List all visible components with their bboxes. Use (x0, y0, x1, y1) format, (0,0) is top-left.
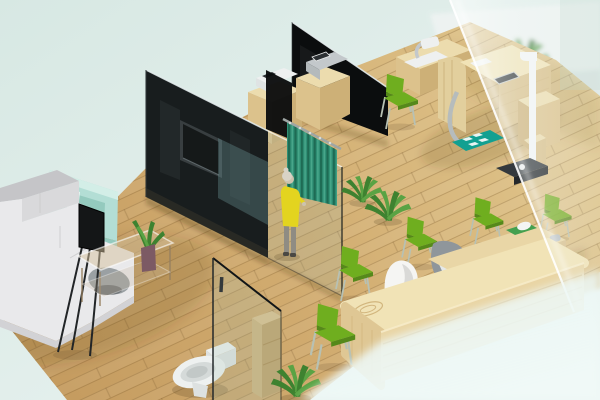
plant-vase (141, 244, 156, 272)
easel-screen (79, 204, 104, 252)
person-leg-left (284, 226, 289, 254)
curtain-hook-1 (289, 122, 292, 125)
render-stage (0, 0, 600, 400)
person-hair (282, 171, 292, 181)
curtain-hook-3 (309, 132, 312, 135)
clinic-render (0, 0, 600, 400)
curtain-hook-4 (319, 137, 322, 140)
person-leg-right (291, 227, 296, 255)
curtain-hook-2 (299, 127, 302, 130)
person-hand (302, 202, 306, 206)
curtain-hook-5 (329, 142, 332, 145)
person-shoe-right (290, 253, 296, 257)
pane-green-tint (560, 0, 600, 90)
person-dress (281, 186, 300, 227)
person-shoe-left (283, 252, 289, 256)
person-hair-bun (284, 168, 289, 173)
